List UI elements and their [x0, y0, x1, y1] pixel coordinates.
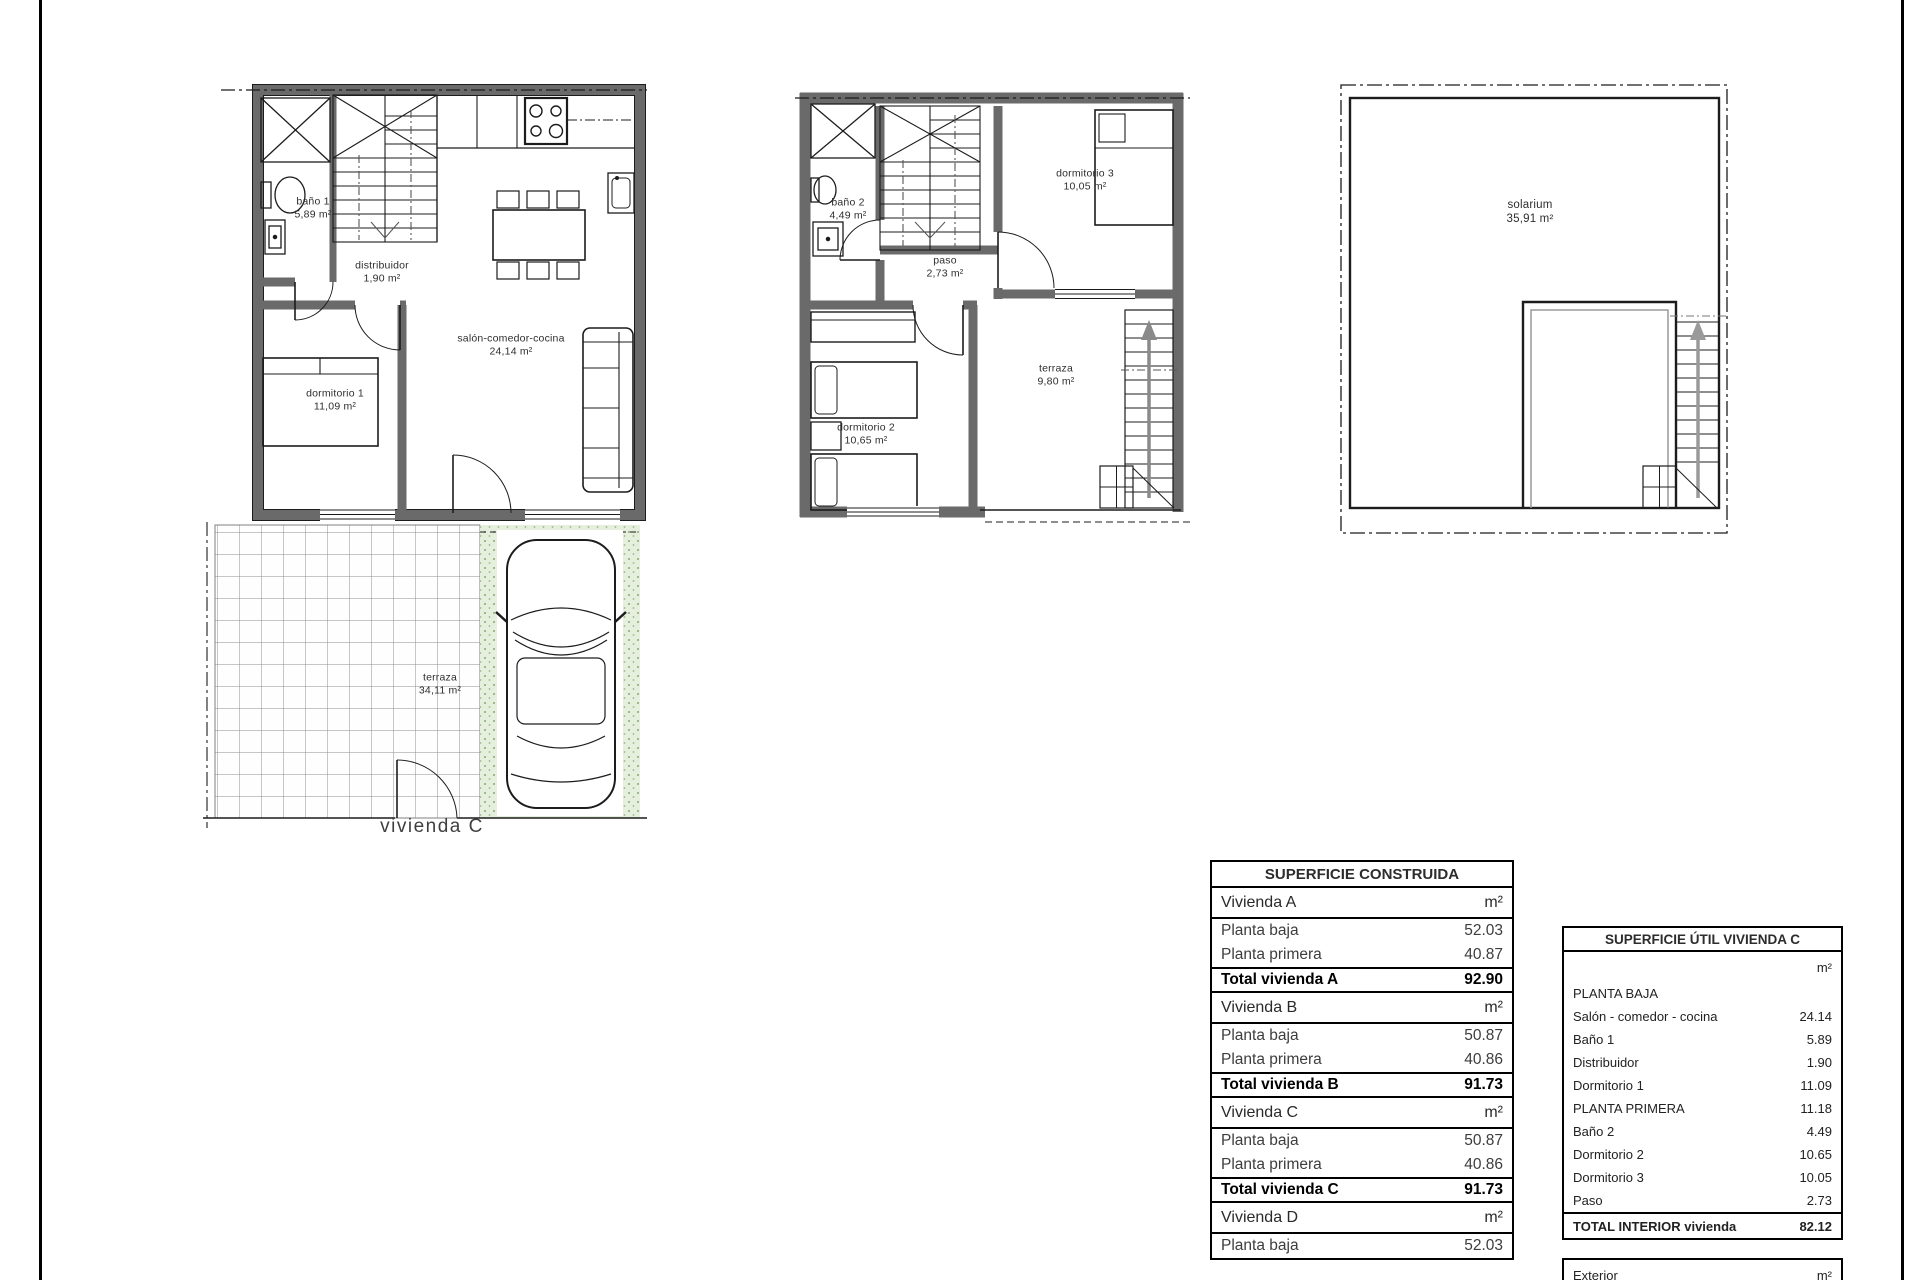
- room-label-terraza-first: terraza9,80 m²: [1038, 363, 1075, 388]
- table-row: Planta baja52.03: [1212, 1234, 1512, 1258]
- row-value: m²: [1817, 960, 1832, 975]
- row-label: Total vivienda B: [1221, 1076, 1339, 1094]
- row-value: 82.12: [1799, 1219, 1832, 1234]
- row-label: Vivienda B: [1221, 999, 1297, 1017]
- row-value: 52.03: [1464, 1237, 1503, 1255]
- table-superficie-util-interior: SUPERFICIE ÚTIL VIVIENDA C m²PLANTA BAJA…: [1562, 926, 1843, 1240]
- row-value: 91.73: [1464, 1181, 1503, 1199]
- dining-table: [493, 191, 585, 279]
- floor-plan-solarium: [1338, 70, 1733, 550]
- row-label: Distribuidor: [1573, 1055, 1639, 1070]
- room-label-distribuidor: distribuidor1,90 m²: [355, 260, 409, 285]
- row-value: 5.89: [1807, 1032, 1832, 1047]
- plan-caption: vivienda C: [380, 816, 484, 838]
- table-row: Dormitorio 210.65: [1564, 1143, 1841, 1166]
- table-row: Planta baja52.03: [1212, 919, 1512, 943]
- row-label: Dormitorio 3: [1573, 1170, 1644, 1185]
- row-value: 10.05: [1799, 1170, 1832, 1185]
- sheet-border-right: [1901, 0, 1904, 1280]
- table-superficie-util-exterior: Exteriorm²Terraza34.11: [1562, 1258, 1843, 1280]
- floor-plan-ground: [195, 70, 655, 860]
- row-label: Planta primera: [1221, 1156, 1322, 1174]
- row-label: Planta baja: [1221, 922, 1299, 940]
- row-label: Vivienda C: [1221, 1104, 1298, 1122]
- drawing-sheet: baño 15,89 m² distribuidor1,90 m² salón-…: [0, 0, 1920, 1280]
- table-row: Dormitorio 111.09: [1564, 1074, 1841, 1097]
- room-label-paso: paso2,73 m²: [927, 255, 964, 280]
- row-label: Total vivienda A: [1221, 971, 1338, 989]
- table-row: Exteriorm²: [1564, 1260, 1841, 1280]
- table-row: Vivienda Cm²: [1212, 1098, 1512, 1129]
- table-title: SUPERFICIE CONSTRUIDA: [1212, 862, 1512, 888]
- row-label: Planta primera: [1221, 1051, 1322, 1069]
- table-row: Vivienda Am²: [1212, 888, 1512, 919]
- table-row: Vivienda Dm²: [1212, 1203, 1512, 1234]
- table-row: Planta primera40.86: [1212, 1048, 1512, 1072]
- row-label: Vivienda A: [1221, 894, 1296, 912]
- row-value: 24.14: [1799, 1009, 1832, 1024]
- row-value: 50.87: [1464, 1027, 1503, 1045]
- row-label: Vivienda D: [1221, 1209, 1298, 1227]
- row-value: 92.90: [1464, 971, 1503, 989]
- row-value: m²: [1484, 999, 1503, 1017]
- row-value: 52.03: [1464, 922, 1503, 940]
- row-value: m²: [1484, 1104, 1503, 1122]
- table-row: m²: [1564, 952, 1841, 982]
- sheet-border-left: [39, 0, 42, 1280]
- row-label: TOTAL INTERIOR vivienda: [1573, 1219, 1736, 1234]
- row-label: Planta baja: [1221, 1237, 1299, 1255]
- table-row: Distribuidor1.90: [1564, 1051, 1841, 1074]
- room-label-bano1: baño 15,89 m²: [295, 196, 332, 221]
- row-label: PLANTA PRIMERA: [1573, 1101, 1685, 1116]
- room-label-dormitorio2: dormitorio 210,65 m²: [837, 422, 895, 447]
- row-value: 50.87: [1464, 1132, 1503, 1150]
- table-row: Baño 24.49: [1564, 1120, 1841, 1143]
- row-label: Paso: [1573, 1193, 1603, 1208]
- row-value: 11.18: [1800, 1101, 1832, 1116]
- room-label-solarium: solarium35,91 m²: [1507, 198, 1554, 226]
- table-body: Vivienda Am²Planta baja52.03Planta prime…: [1212, 888, 1512, 1258]
- car-top-view: [496, 530, 626, 816]
- row-label: Total vivienda C: [1221, 1181, 1339, 1199]
- table-row: Planta baja50.87: [1212, 1129, 1512, 1153]
- row-label: Baño 2: [1573, 1124, 1614, 1139]
- row-value: 11.09: [1800, 1078, 1832, 1093]
- row-label: Baño 1: [1573, 1032, 1614, 1047]
- row-value: 4.49: [1807, 1124, 1832, 1139]
- table-row: Total vivienda C91.73: [1212, 1177, 1512, 1203]
- room-label-dormitorio1: dormitorio 111,09 m²: [306, 388, 364, 413]
- table-row: Baño 15.89: [1564, 1028, 1841, 1051]
- table-row: Planta primera40.87: [1212, 943, 1512, 967]
- row-value: 40.86: [1464, 1051, 1503, 1069]
- row-label: Dormitorio 2: [1573, 1147, 1644, 1162]
- table-row: PLANTA BAJA: [1564, 982, 1841, 1005]
- table-row: Dormitorio 310.05: [1564, 1166, 1841, 1189]
- row-value: m²: [1484, 894, 1503, 912]
- room-label-salon: salón-comedor-cocina24,14 m²: [457, 333, 564, 358]
- table-row: Planta baja50.87: [1212, 1024, 1512, 1048]
- row-value: 40.86: [1464, 1156, 1503, 1174]
- room-label-terraza-ground: terraza34,11 m²: [419, 672, 461, 697]
- row-value: 2.73: [1807, 1193, 1832, 1208]
- row-label: Dormitorio 1: [1573, 1078, 1644, 1093]
- table-row: Vivienda Bm²: [1212, 993, 1512, 1024]
- room-label-bano2: baño 24,49 m²: [830, 197, 867, 222]
- row-label: Planta primera: [1221, 946, 1322, 964]
- table-title: SUPERFICIE ÚTIL VIVIENDA C: [1564, 928, 1841, 952]
- row-label: Exterior: [1573, 1268, 1618, 1280]
- row-value: 91.73: [1464, 1076, 1503, 1094]
- row-value: 40.87: [1464, 946, 1503, 964]
- table-superficie-construida: SUPERFICIE CONSTRUIDA Vivienda Am²Planta…: [1210, 860, 1514, 1260]
- table-row: Salón - comedor - cocina24.14: [1564, 1005, 1841, 1028]
- row-value: m²: [1817, 1268, 1832, 1280]
- table-row: Paso2.73: [1564, 1189, 1841, 1212]
- row-value: 10.65: [1799, 1147, 1832, 1162]
- row-value: 1.90: [1807, 1055, 1832, 1070]
- row-value: m²: [1484, 1209, 1503, 1227]
- table-body: Exteriorm²Terraza34.11: [1564, 1260, 1841, 1280]
- room-label-dormitorio3: dormitorio 310,05 m²: [1056, 168, 1114, 193]
- table-row: Planta primera40.86: [1212, 1153, 1512, 1177]
- row-label: Planta baja: [1221, 1132, 1299, 1150]
- table-row: Total vivienda A92.90: [1212, 967, 1512, 993]
- row-label: Salón - comedor - cocina: [1573, 1009, 1718, 1024]
- table-row: Total vivienda B91.73: [1212, 1072, 1512, 1098]
- table-row: PLANTA PRIMERA11.18: [1564, 1097, 1841, 1120]
- floor-plan-first: [795, 70, 1195, 545]
- table-row: TOTAL INTERIOR vivienda82.12: [1564, 1212, 1841, 1238]
- row-label: Planta baja: [1221, 1027, 1299, 1045]
- table-body: m²PLANTA BAJASalón - comedor - cocina24.…: [1564, 952, 1841, 1238]
- row-label: PLANTA BAJA: [1573, 986, 1658, 1001]
